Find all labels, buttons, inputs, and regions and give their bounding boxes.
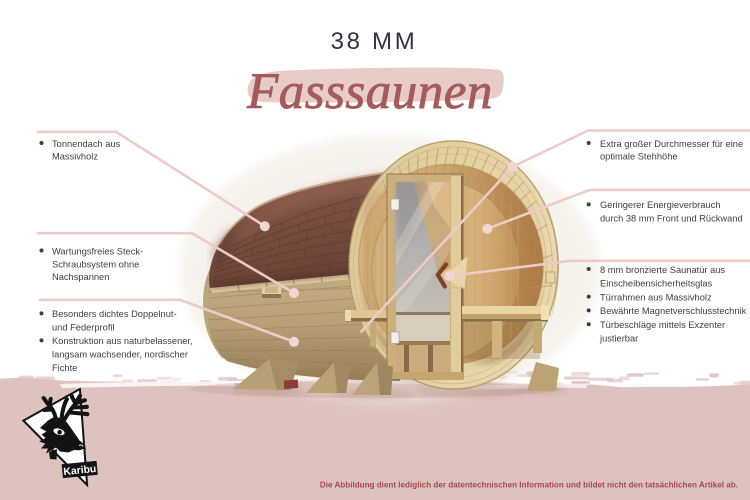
svg-text:Nachspannen: Nachspannen — [52, 272, 109, 282]
svg-text:und Federprofil: und Federprofil — [52, 323, 115, 333]
svg-text:Schraubsystem ohne: Schraubsystem ohne — [52, 259, 139, 269]
svg-text:Wartungsfreies Steck-: Wartungsfreies Steck- — [52, 247, 143, 257]
svg-text:Extra großer Durchmesser für e: Extra großer Durchmesser für eine — [600, 139, 743, 149]
svg-text:Massivholz: Massivholz — [52, 152, 98, 162]
svg-text:Besonders dichtes Doppelnut-: Besonders dichtes Doppelnut- — [52, 309, 177, 319]
svg-text:justierbar: justierbar — [599, 333, 638, 343]
svg-text:Tonnendach aus: Tonnendach aus — [52, 139, 121, 149]
svg-text:durch 38 mm Front und Rückwand: durch 38 mm Front und Rückwand — [600, 213, 743, 223]
svg-text:Fasssaunen: Fasssaunen — [246, 64, 493, 120]
svg-text:Die Abbildung dient lediglich: Die Abbildung dient lediglich der datent… — [320, 481, 738, 490]
svg-text:optimale Stehhöhe: optimale Stehhöhe — [600, 151, 678, 161]
svg-text:8 mm bronzierte Saunatür aus: 8 mm bronzierte Saunatür aus — [600, 265, 725, 275]
svg-text:langsam wachsender, nordischer: langsam wachsender, nordischer — [52, 350, 188, 360]
svg-text:Konstruktion aus naturbelassen: Konstruktion aus naturbelassener, — [52, 336, 193, 346]
svg-text:Bewährte Magnetverschlusstechn: Bewährte Magnetverschlusstechnik — [600, 306, 747, 316]
svg-text:Geringerer Energieverbrauch: Geringerer Energieverbrauch — [600, 200, 720, 210]
svg-text:Fichte: Fichte — [52, 363, 77, 373]
svg-text:38 MM: 38 MM — [331, 28, 418, 55]
svg-text:Türbeschläge mittels Exzenter: Türbeschläge mittels Exzenter — [600, 320, 725, 330]
svg-text:Türrahmen aus Massivholz: Türrahmen aus Massivholz — [600, 292, 712, 302]
svg-text:Einscheibensicherheitsglas: Einscheibensicherheitsglas — [600, 279, 712, 289]
